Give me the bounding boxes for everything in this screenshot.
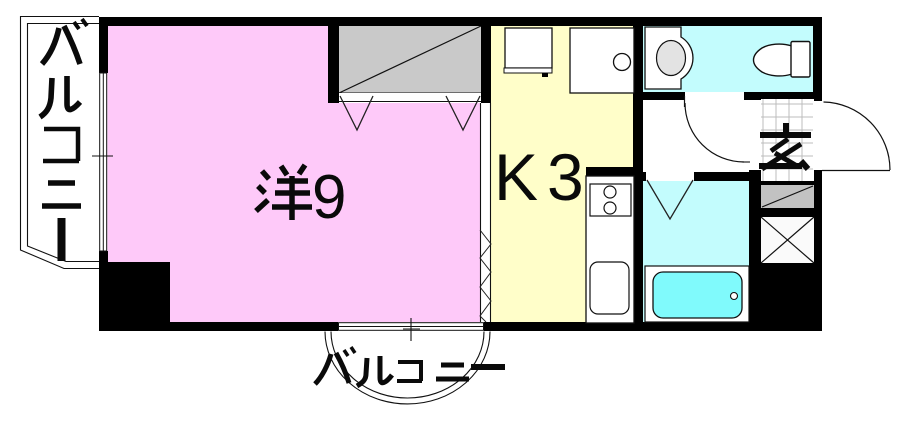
- svg-text:9: 9: [312, 163, 346, 232]
- svg-text:K3: K3: [494, 140, 593, 214]
